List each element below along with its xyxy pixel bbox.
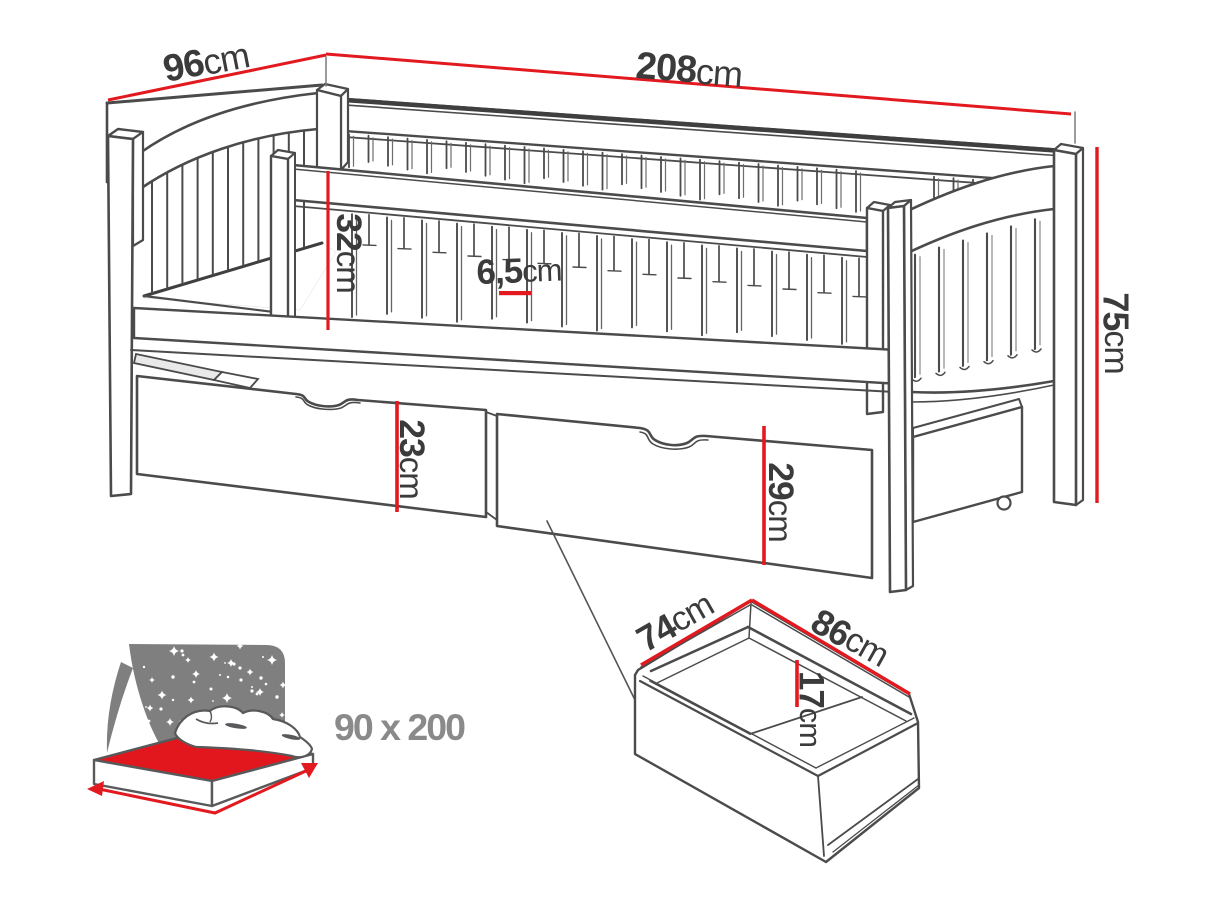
svg-text:6,5cm: 6,5cm <box>476 250 562 292</box>
svg-text:90 x 200: 90 x 200 <box>334 706 465 748</box>
svg-text:32cm: 32cm <box>329 213 369 293</box>
svg-text:208cm: 208cm <box>634 45 743 95</box>
svg-text:23cm: 23cm <box>392 419 432 499</box>
svg-text:96cm: 96cm <box>160 33 253 91</box>
svg-text:17cm: 17cm <box>792 671 831 747</box>
svg-text:29cm: 29cm <box>761 462 801 542</box>
svg-text:75cm: 75cm <box>1096 292 1137 373</box>
